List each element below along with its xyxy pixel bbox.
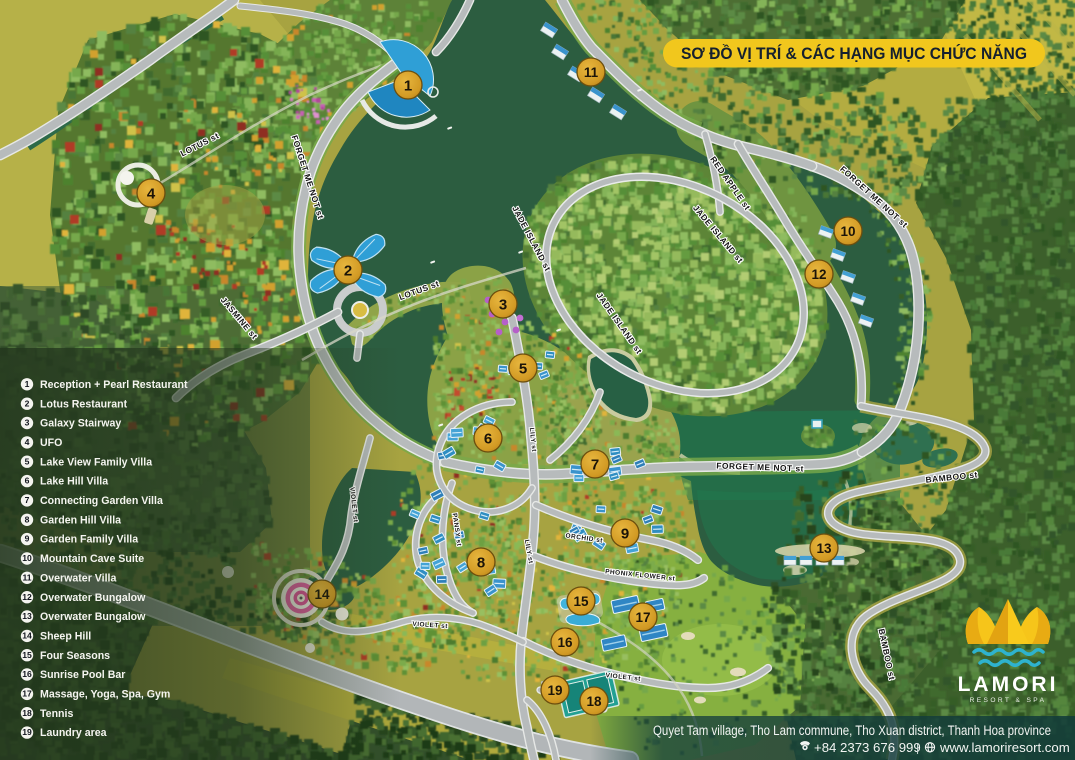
- svg-text:Lotus Restaurant: Lotus Restaurant: [40, 398, 128, 410]
- svg-text:Overwater Bungalow: Overwater Bungalow: [40, 611, 146, 623]
- svg-text:+84 2373 676 999: +84 2373 676 999: [814, 740, 921, 755]
- svg-text:9: 9: [621, 525, 629, 542]
- svg-text:SƠ ĐỒ VỊ TRÍ & CÁC HẠNG MỤC CH: SƠ ĐỒ VỊ TRÍ & CÁC HẠNG MỤC CHỨC NĂNG: [681, 44, 1027, 63]
- svg-text:19: 19: [547, 683, 562, 698]
- svg-text:12: 12: [22, 592, 32, 602]
- svg-text:1: 1: [404, 77, 412, 94]
- svg-text:13: 13: [816, 541, 832, 556]
- svg-text:|: |: [916, 741, 919, 755]
- svg-text:8: 8: [25, 514, 30, 524]
- svg-text:Galaxy Stairway: Galaxy Stairway: [40, 418, 121, 430]
- svg-text:6: 6: [484, 430, 492, 447]
- svg-text:Garden Hill Villa: Garden Hill Villa: [40, 514, 121, 526]
- svg-text:11: 11: [584, 65, 599, 80]
- svg-text:8: 8: [477, 554, 485, 571]
- svg-text:1: 1: [25, 379, 30, 389]
- svg-text:4: 4: [147, 185, 156, 202]
- svg-text:16: 16: [22, 669, 32, 679]
- svg-text:LAMORI: LAMORI: [958, 673, 1059, 696]
- svg-text:7: 7: [591, 456, 599, 473]
- svg-text:Sunrise Pool Bar: Sunrise Pool Bar: [40, 669, 125, 681]
- svg-text:Connecting Garden Villa: Connecting Garden Villa: [40, 495, 163, 507]
- svg-text:Four Seasons: Four Seasons: [40, 650, 110, 662]
- svg-text:12: 12: [811, 267, 826, 282]
- svg-text:Overwater Villa: Overwater Villa: [40, 572, 116, 584]
- svg-text:13: 13: [22, 611, 32, 621]
- svg-text:Garden Family Villa: Garden Family Villa: [40, 534, 138, 546]
- svg-text:2: 2: [344, 262, 352, 279]
- svg-text:3: 3: [25, 418, 30, 428]
- svg-text:10: 10: [22, 553, 32, 563]
- svg-text:Quyet Tam village, Tho Lam com: Quyet Tam village, Tho Lam commune, Tho …: [653, 723, 1051, 738]
- svg-text:Overwater Bungalow: Overwater Bungalow: [40, 592, 146, 604]
- svg-text:9: 9: [25, 534, 30, 544]
- svg-text:Mountain Cave Suite: Mountain Cave Suite: [40, 553, 144, 565]
- svg-text:5: 5: [25, 456, 30, 466]
- svg-text:11: 11: [22, 572, 31, 582]
- svg-text:4: 4: [25, 437, 30, 447]
- svg-text:19: 19: [22, 727, 32, 737]
- svg-text:10: 10: [840, 224, 855, 239]
- svg-text:UFO: UFO: [40, 437, 62, 449]
- svg-text:16: 16: [557, 635, 573, 650]
- svg-text:3: 3: [499, 296, 507, 313]
- svg-text:7: 7: [25, 495, 30, 505]
- svg-text:Reception + Pearl Restaurant: Reception + Pearl Restaurant: [40, 379, 188, 391]
- svg-text:15: 15: [573, 594, 589, 609]
- svg-text:Lake Hill Villa: Lake Hill Villa: [40, 476, 108, 488]
- svg-text:15: 15: [22, 650, 32, 660]
- svg-text:17: 17: [22, 689, 32, 699]
- svg-text:Laundry area: Laundry area: [40, 727, 107, 739]
- svg-text:6: 6: [25, 476, 30, 486]
- svg-text:18: 18: [586, 694, 602, 709]
- svg-text:17: 17: [635, 610, 650, 625]
- svg-text:14: 14: [22, 631, 32, 641]
- svg-text:Massage, Yoga, Spa, Gym: Massage, Yoga, Spa, Gym: [40, 689, 170, 701]
- svg-text:Tennis: Tennis: [40, 708, 73, 720]
- svg-text:Lake View Family Villa: Lake View Family Villa: [40, 456, 152, 468]
- svg-text:Sheep Hill: Sheep Hill: [40, 631, 91, 643]
- svg-text:5: 5: [519, 360, 527, 377]
- svg-text:2: 2: [25, 398, 30, 408]
- svg-text:RESORT & SPA: RESORT & SPA: [970, 697, 1047, 704]
- svg-text:18: 18: [22, 708, 32, 718]
- svg-text:www.lamoriresort.com: www.lamoriresort.com: [939, 740, 1070, 755]
